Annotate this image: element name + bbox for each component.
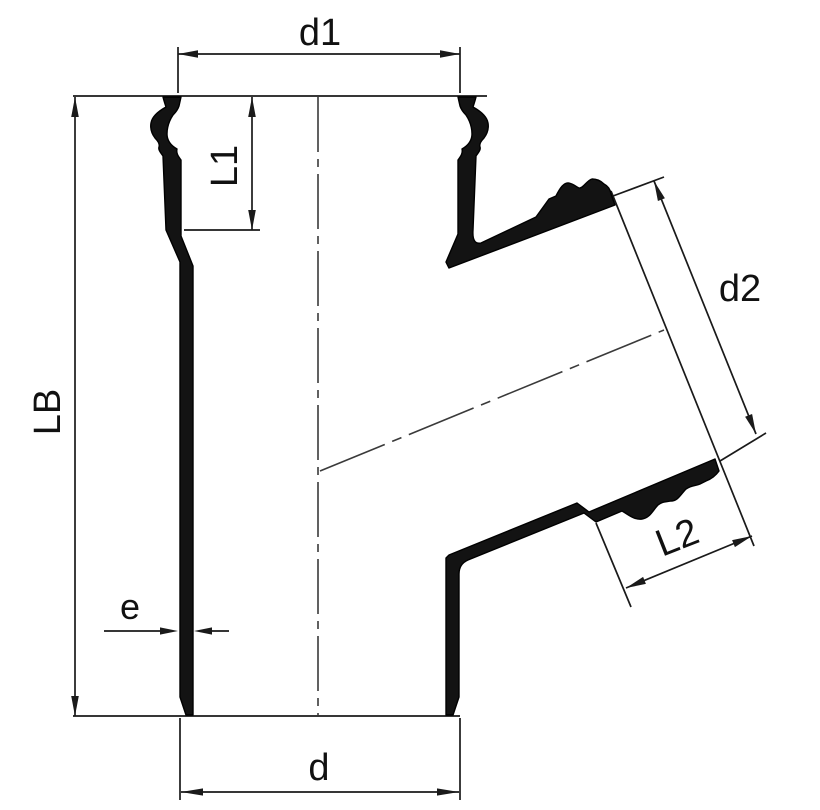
left-wall-section: [151, 97, 193, 715]
right-upper-wall-section: [446, 97, 615, 268]
dimension-d1: d1: [178, 12, 460, 93]
LB-arrow-bottom-icon: [71, 696, 79, 716]
right-lower-wall-section: [446, 459, 719, 715]
dim-label-d2: d2: [719, 268, 761, 310]
dimension-e: e: [104, 586, 229, 635]
d1-arrow-right-icon: [440, 50, 460, 58]
LB-arrow-top-icon: [71, 97, 79, 117]
e-arrow-left-icon: [160, 627, 178, 634]
d2-arrow-bottom-icon: [745, 414, 756, 434]
dim-label-LB: LB: [27, 389, 69, 435]
centerline-branch: [320, 330, 664, 471]
d1-arrow-left-icon: [178, 50, 198, 58]
L2-arrow-left-icon: [626, 577, 646, 588]
dim-label-e: e: [120, 586, 140, 627]
dimension-d: d: [180, 718, 460, 800]
d2-extension-lower: [720, 433, 766, 461]
centerlines: [318, 97, 664, 715]
dimension-LB: LB: [27, 97, 79, 716]
L1-arrow-top-icon: [248, 97, 256, 117]
dimension-d2: d2: [613, 177, 766, 461]
dimension-L2: L2: [596, 511, 752, 607]
d2-arrow-top-icon: [654, 181, 665, 201]
d-arrow-right-icon: [437, 788, 459, 795]
technical-drawing: d1 LB L1 e: [0, 0, 820, 810]
dim-label-d1: d1: [299, 12, 341, 54]
L2-extension-left: [596, 523, 631, 607]
L1-arrow-bottom-icon: [248, 210, 256, 230]
d-arrow-left-icon: [181, 788, 203, 795]
dim-label-d: d: [308, 747, 329, 789]
e-arrow-right-icon: [194, 627, 212, 634]
dim-label-L1: L1: [204, 145, 246, 187]
L2-arrow-right-icon: [732, 536, 752, 547]
dimension-L1: L1: [184, 97, 260, 230]
pipe-fitting-diagram: d1 LB L1 e: [0, 0, 820, 810]
fitting-walls: [151, 97, 719, 715]
dim-label-L2: L2: [650, 511, 705, 566]
